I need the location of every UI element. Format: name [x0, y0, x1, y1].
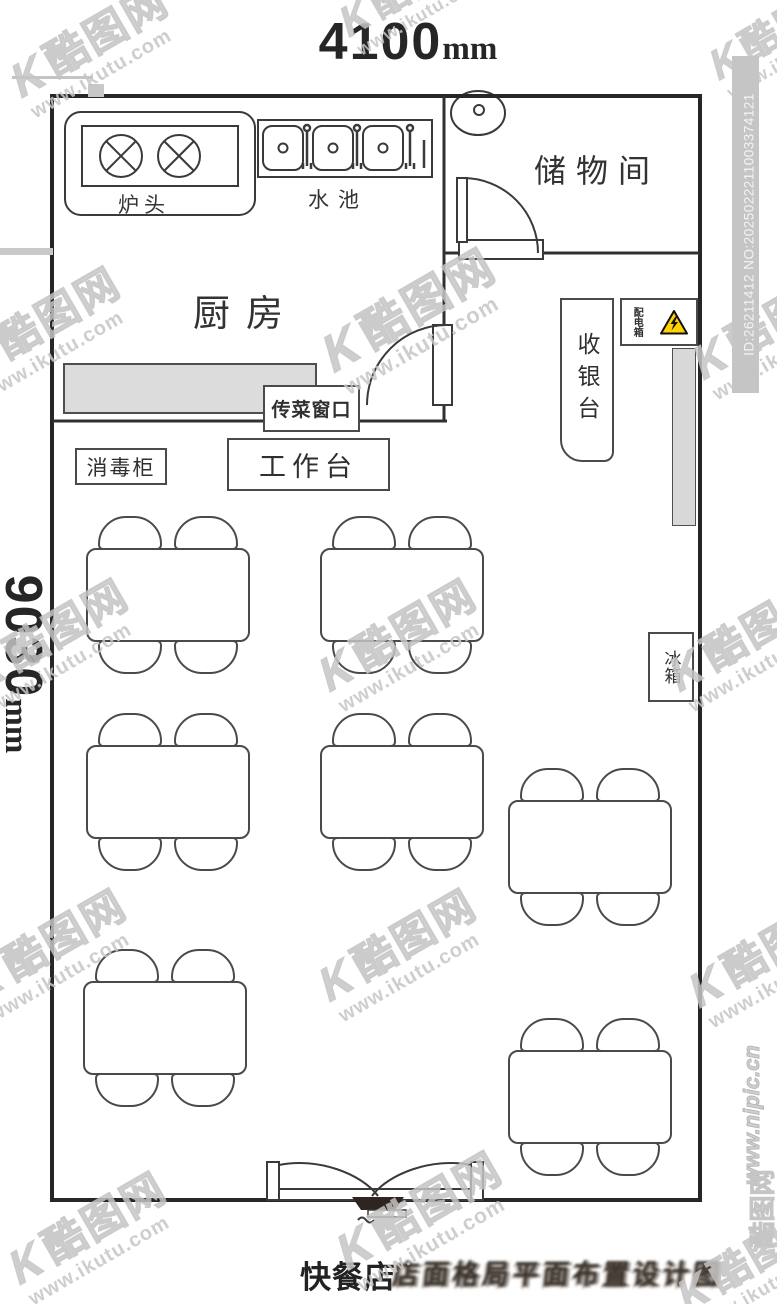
sink-icon	[258, 120, 432, 177]
dining-table	[86, 745, 250, 839]
caption-distorted-text: 店面格局平面布置设计图	[391, 1253, 695, 1292]
worktable-label: 工作台	[227, 438, 390, 491]
floor-plan: 4100mm 9030mm 厨房 储物间 炉头 水池 传菜窗口 消毒柜 工作台 …	[0, 0, 777, 1304]
kitchen-door	[367, 325, 452, 405]
dimension-leader-line-left	[0, 248, 53, 255]
distribution-box-label: 配电箱	[629, 307, 644, 337]
dining-table	[508, 1050, 672, 1144]
storage-door	[457, 178, 543, 259]
dining-table	[83, 981, 247, 1075]
stove-label: 炉头	[118, 189, 170, 219]
cashier-counter: 收银台	[560, 298, 614, 462]
caption-shop-name: 快餐店	[300, 1252, 396, 1297]
dimension-leader-line	[12, 76, 93, 79]
sink-label: 水池	[308, 184, 368, 214]
dimension-left-unit: mm	[0, 698, 34, 753]
fridge: 冰箱	[648, 632, 694, 702]
storage-room-label: 储物间	[534, 146, 660, 192]
watermark-nipic-logo: 酷图网	[743, 1169, 777, 1247]
wall-shelf	[672, 348, 696, 526]
cashier-label: 收银台	[570, 332, 604, 428]
kitchen-label: 厨房	[193, 283, 299, 337]
dimension-top: 4100mm	[308, 12, 508, 72]
dimension-left: 9030mm	[0, 534, 53, 794]
dining-table	[320, 548, 484, 642]
dimension-top-unit: mm	[442, 31, 497, 67]
dimension-left-value: 9030	[0, 575, 52, 699]
dining-table	[508, 800, 672, 894]
distribution-box: 配电箱	[620, 298, 698, 346]
electric-warning-icon	[659, 309, 689, 336]
dimension-top-value: 4100	[319, 13, 443, 71]
entrance-double-door	[267, 1162, 483, 1223]
watermark-id-text: ID:26211412 NO:2025022211003374121	[742, 65, 757, 385]
wall-notch	[88, 84, 104, 97]
dining-table	[320, 745, 484, 839]
dining-table	[86, 548, 250, 642]
disinfection-cabinet-label: 消毒柜	[75, 448, 167, 485]
fridge-label: 冰箱	[659, 650, 684, 684]
watermark-id-bar: ID:26211412 NO:2025022211003374121	[732, 56, 759, 393]
serving-window-label: 传菜窗口	[263, 385, 360, 432]
